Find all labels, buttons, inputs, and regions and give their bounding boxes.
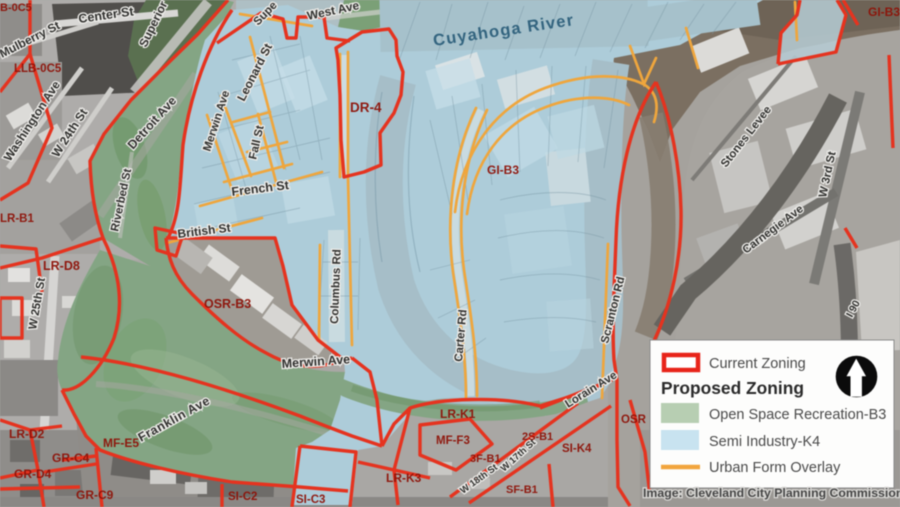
svg-text:LR-D8: LR-D8 [43, 259, 80, 273]
svg-text:LR-D2: LR-D2 [9, 427, 45, 441]
svg-text:2S-B1: 2S-B1 [522, 431, 553, 443]
svg-text:LR-B1: LR-B1 [0, 213, 34, 225]
svg-text:Image: Cleveland City Planning: Image: Cleveland City Planning Commissio… [643, 486, 900, 500]
svg-text:MF-F3: MF-F3 [436, 435, 470, 447]
svg-text:MF-E5: MF-E5 [103, 436, 139, 450]
svg-text:SI-C2: SI-C2 [228, 491, 257, 503]
svg-text:B-0C5: B-0C5 [0, 2, 32, 14]
svg-text:LR-K3: LR-K3 [386, 471, 422, 485]
svg-text:GR-D4: GR-D4 [14, 467, 52, 481]
svg-text:3F-B1: 3F-B1 [470, 453, 501, 465]
svg-text:Semi Industry-K4: Semi Industry-K4 [709, 434, 820, 450]
svg-text:LLB-0C5: LLB-0C5 [14, 63, 62, 75]
svg-text:SF-B1: SF-B1 [506, 484, 538, 496]
svg-text:GR-C9: GR-C9 [76, 488, 114, 502]
svg-text:DR-4: DR-4 [350, 100, 382, 115]
svg-text:SI-K4: SI-K4 [562, 443, 592, 455]
svg-text:GR-C4: GR-C4 [52, 451, 90, 465]
svg-text:Open Space Recreation-B3: Open Space Recreation-B3 [709, 407, 886, 423]
svg-text:Proposed Zoning: Proposed Zoning [661, 378, 804, 398]
svg-text:Current Zoning: Current Zoning [709, 356, 806, 372]
svg-text:LR-K1: LR-K1 [440, 407, 476, 421]
svg-text:GI-B3: GI-B3 [868, 5, 900, 19]
svg-text:SI-C3: SI-C3 [296, 494, 325, 506]
svg-text:Urban Form Overlay: Urban Form Overlay [709, 460, 841, 476]
svg-text:OSR: OSR [621, 414, 647, 426]
svg-text:GI-B3: GI-B3 [487, 163, 519, 177]
svg-text:OSR-B3: OSR-B3 [204, 297, 251, 311]
